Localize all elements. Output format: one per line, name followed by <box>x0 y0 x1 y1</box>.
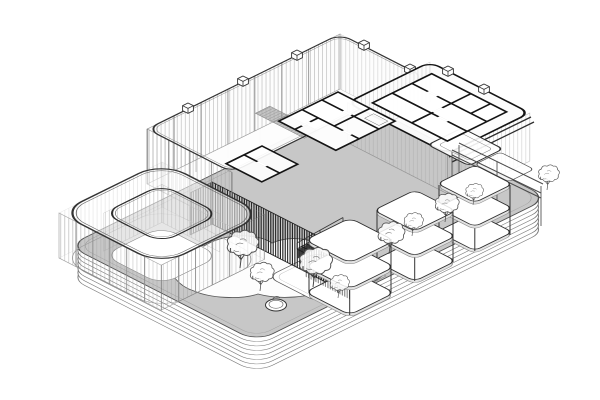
axonometric-drawing-stage <box>0 0 600 400</box>
roof-vent <box>238 76 249 86</box>
roof-vent <box>479 84 490 94</box>
roof-vent <box>292 50 303 60</box>
roof-vent <box>443 66 454 76</box>
roof-vent <box>183 103 194 113</box>
axonometric-drawing <box>0 0 600 400</box>
roof-vent <box>359 40 370 50</box>
